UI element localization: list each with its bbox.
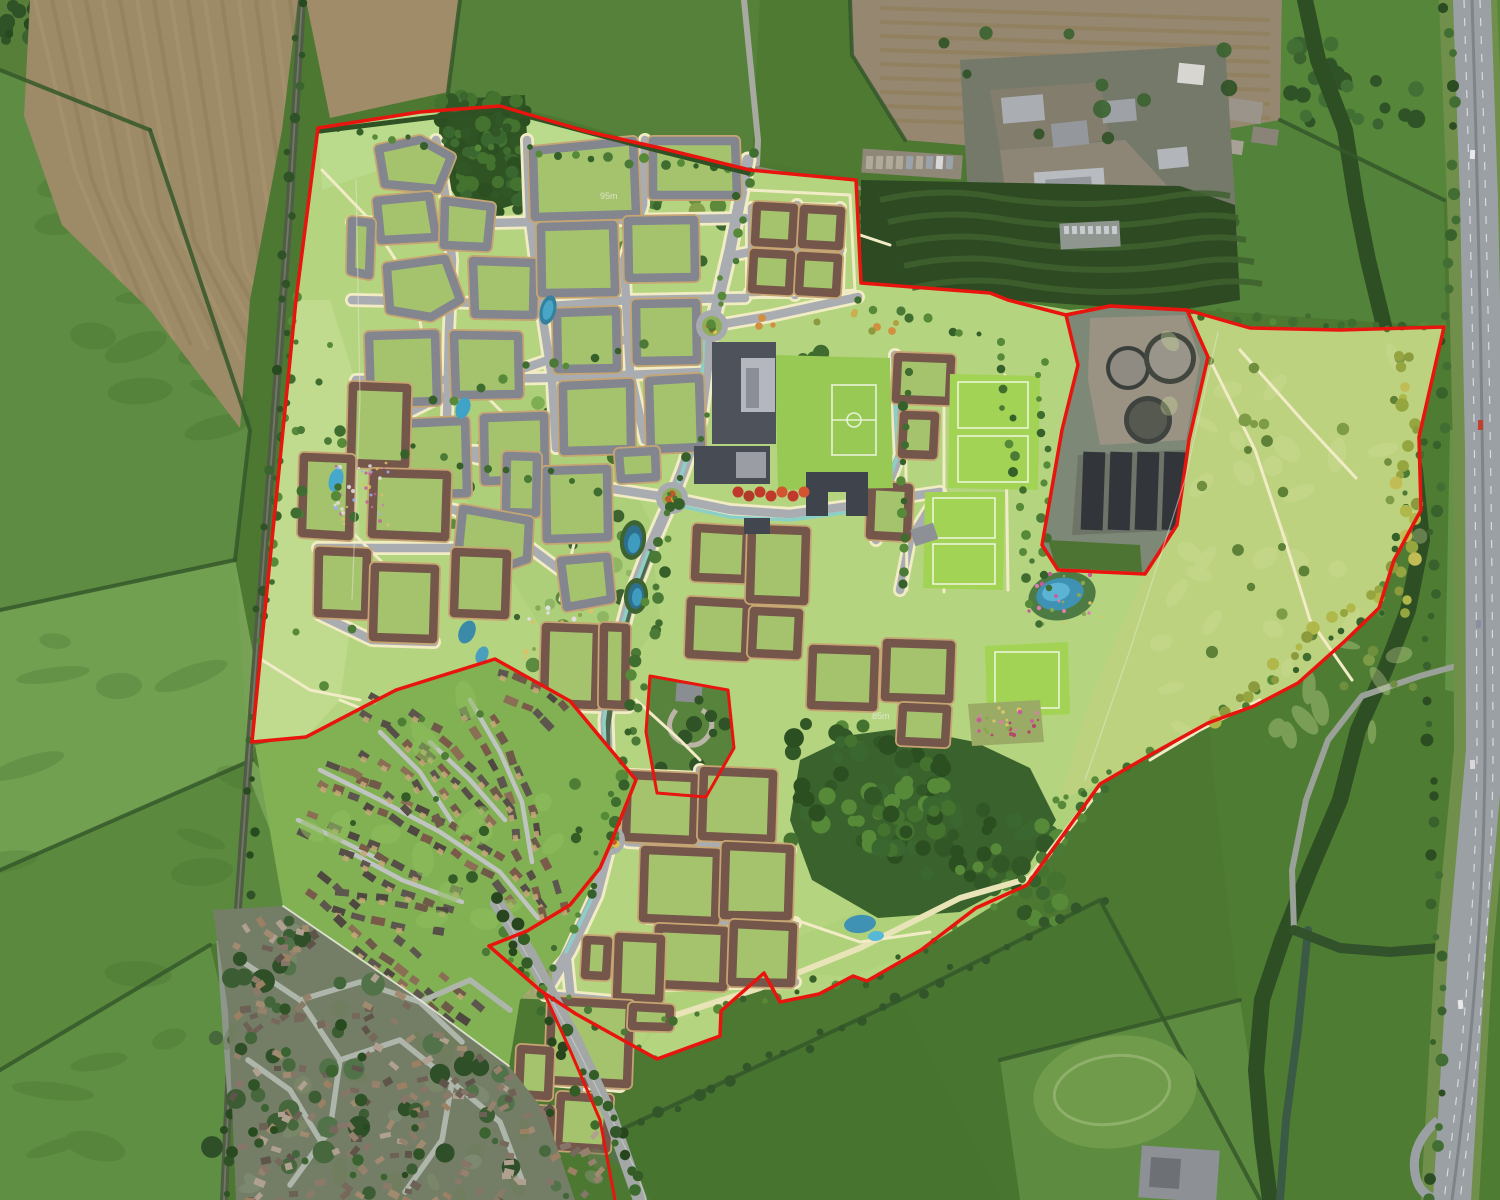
svg-text:85m: 85m	[872, 711, 890, 721]
svg-text:95m: 95m	[600, 191, 618, 201]
